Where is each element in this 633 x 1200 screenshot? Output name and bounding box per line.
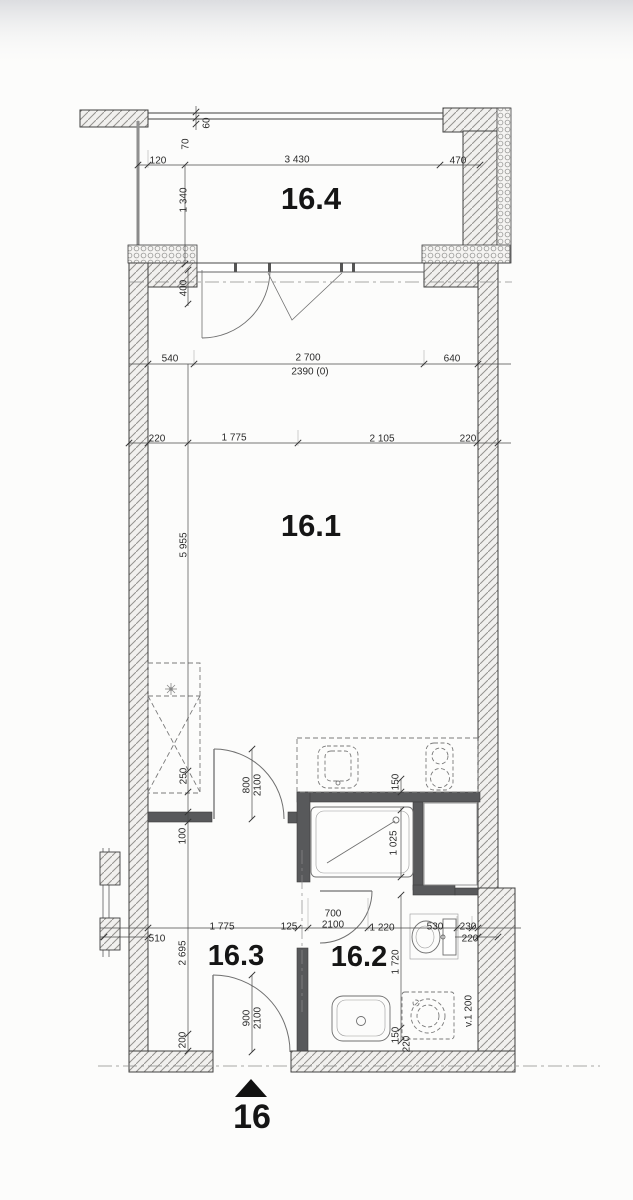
hall-north-wall xyxy=(148,812,212,822)
dim-label: 60 xyxy=(202,117,213,129)
sill-insulation-left xyxy=(128,245,197,263)
dim-label: 120 xyxy=(150,156,167,167)
dim-label: 900 xyxy=(242,1009,253,1026)
bathroom-west-wall-lower xyxy=(297,948,308,1051)
dim-label: 1 220 xyxy=(369,923,394,934)
window-pier-right xyxy=(424,263,478,287)
room-label-16-2: 16.2 xyxy=(331,941,387,973)
dim-label: 1 775 xyxy=(209,922,234,933)
dim-label: 220 xyxy=(460,434,477,445)
dim-label: v.1 200 xyxy=(464,995,475,1027)
dim-label: 1 340 xyxy=(179,187,190,212)
closet-south-wall xyxy=(413,885,455,895)
sill-insulation-right xyxy=(422,245,510,263)
right-exterior-wall xyxy=(478,263,498,890)
dim-label: 540 xyxy=(162,354,179,365)
dim-label: 640 xyxy=(444,354,461,365)
dim-label: 100 xyxy=(178,827,189,844)
paper-background xyxy=(0,0,633,1200)
dim-label: 150 xyxy=(391,1026,402,1043)
dim-label: 70 xyxy=(181,138,192,150)
dim-label: 250 xyxy=(179,767,190,784)
top-right-wall xyxy=(463,131,497,253)
dim-label: 220 xyxy=(149,434,166,445)
dim-label: 700 xyxy=(325,909,342,920)
dim-label: 800 xyxy=(242,776,253,793)
dim-label: 470 xyxy=(450,156,467,167)
room-label-16: 16 xyxy=(233,1098,271,1136)
bathroom-west-wall-upper xyxy=(297,792,310,882)
window-pier-left xyxy=(148,263,197,287)
dim-label: 2100 xyxy=(322,920,345,931)
dim-label: 530 xyxy=(427,922,444,933)
dim-label: 220 xyxy=(402,1035,413,1052)
dim-label: 230 xyxy=(460,922,477,933)
dim-label: 2 695 xyxy=(178,940,189,965)
right-exterior-wall-lower xyxy=(478,888,515,1072)
dim-label: 400 xyxy=(179,279,190,296)
dim-label: 510 xyxy=(149,934,166,945)
dim-label: 2 105 xyxy=(369,434,394,445)
left-exterior-wall xyxy=(129,263,148,1071)
dim-label: 220 xyxy=(462,934,479,945)
room-label-16-3: 16.3 xyxy=(208,940,264,972)
room-label-16-1: 16.1 xyxy=(281,508,341,543)
floor-plan-drawing: 1203 43047060701 3404005402 7002390 (0)6… xyxy=(0,0,633,1200)
bottom-wall-right xyxy=(291,1051,515,1072)
dim-label: 2100 xyxy=(253,1006,264,1029)
dim-label: 2 700 xyxy=(295,353,320,364)
dim-label: 150 xyxy=(391,773,402,790)
dim-label: 1 025 xyxy=(389,830,400,855)
dim-label: 200 xyxy=(178,1031,189,1048)
dim-label: 3 430 xyxy=(284,155,309,166)
closet-south-wall-thin xyxy=(455,888,478,895)
dim-label: 125 xyxy=(281,922,298,933)
kitchen-south-wall xyxy=(297,792,480,802)
dim-label: 1 775 xyxy=(221,433,246,444)
dim-label: 2100 xyxy=(253,773,264,796)
dim-label: 2390 (0) xyxy=(291,367,328,378)
floor-plan-page: 1203 43047060701 3404005402 7002390 (0)6… xyxy=(0,0,633,1200)
dim-label: 5 955 xyxy=(179,532,190,557)
room-label-16-4: 16.4 xyxy=(281,181,342,216)
bottom-wall-left xyxy=(129,1051,213,1072)
dim-label: 1 720 xyxy=(391,949,402,974)
shower-east-wall xyxy=(413,802,423,890)
insulation-strip xyxy=(497,108,511,263)
photo-top-shade xyxy=(0,0,633,68)
